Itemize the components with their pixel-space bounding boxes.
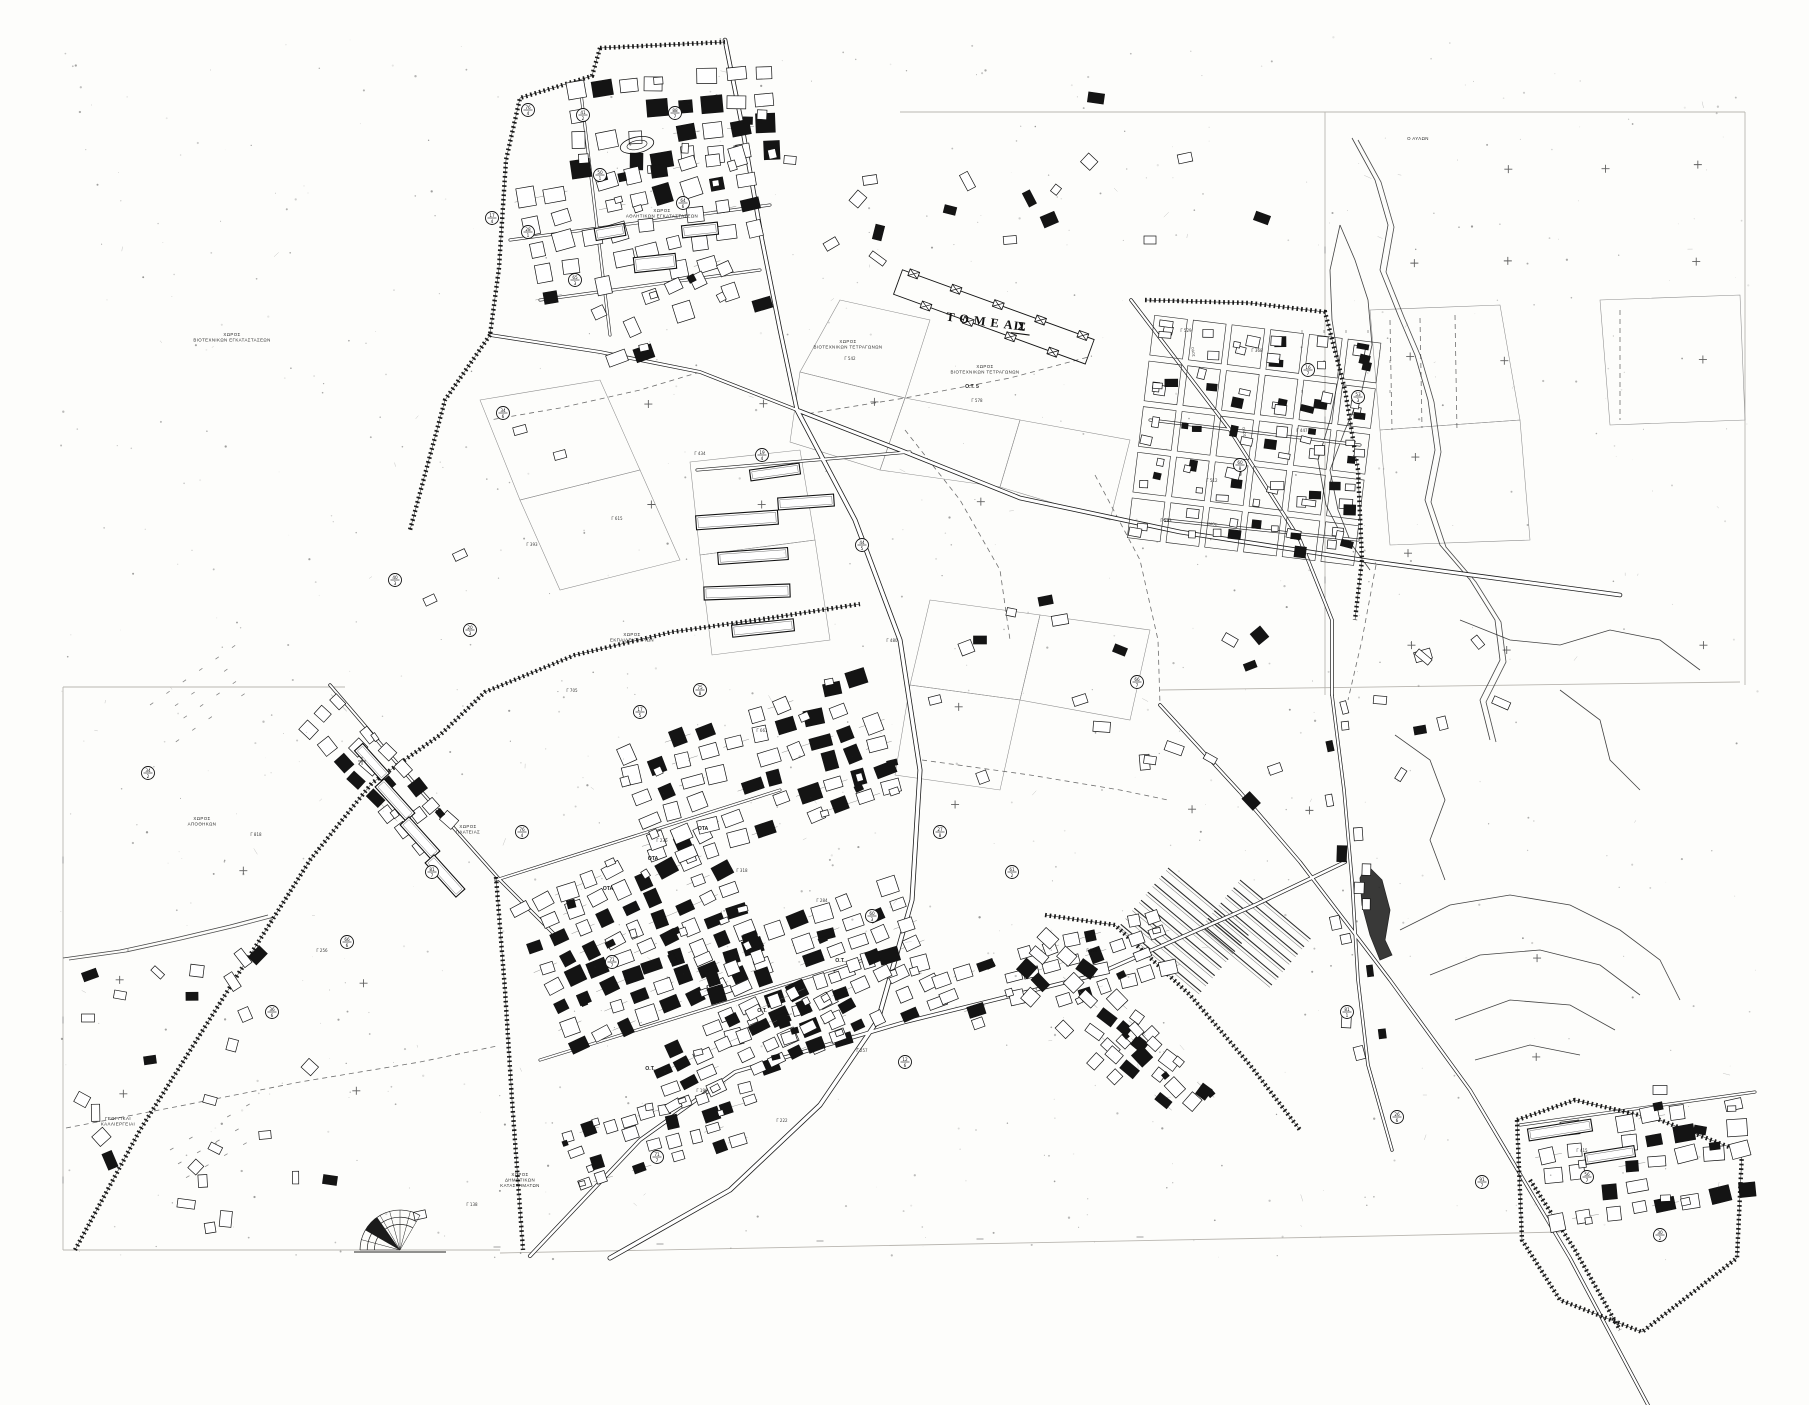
building bbox=[1213, 529, 1221, 537]
noise-dot bbox=[1278, 358, 1280, 360]
circle-marker: 667 bbox=[1131, 676, 1144, 689]
noise-dot bbox=[1616, 456, 1617, 457]
noise-dot bbox=[849, 563, 850, 564]
circle-marker-bottom: 3 bbox=[574, 281, 577, 286]
noise-dot bbox=[834, 624, 835, 625]
building bbox=[1344, 505, 1356, 515]
noise-dot bbox=[221, 324, 223, 326]
noise-dot bbox=[857, 282, 858, 283]
noise-dot bbox=[180, 154, 182, 156]
circle-marker-top: 88 bbox=[672, 108, 678, 113]
noise-dot bbox=[1261, 66, 1262, 67]
circle-marker: 646 bbox=[677, 197, 690, 210]
circle-marker-bottom: 3 bbox=[871, 917, 874, 922]
noise-dot bbox=[589, 333, 590, 334]
noise-dot bbox=[1159, 1051, 1161, 1053]
noise-dot bbox=[118, 172, 119, 173]
noise-dot bbox=[790, 766, 792, 768]
noise-dot bbox=[61, 911, 62, 912]
noise-dot bbox=[1613, 581, 1615, 583]
building bbox=[756, 67, 772, 80]
noise-dot bbox=[177, 713, 179, 715]
noise-dot bbox=[1286, 809, 1287, 810]
noise-dot bbox=[275, 193, 276, 194]
noise-dot bbox=[422, 1075, 424, 1077]
circle-marker-bottom: 6 bbox=[271, 1013, 274, 1018]
noise-dot bbox=[215, 1127, 217, 1129]
noise-dot bbox=[1073, 1153, 1074, 1154]
noise-dot bbox=[1319, 1236, 1321, 1238]
noise-dot bbox=[868, 207, 870, 209]
building bbox=[676, 123, 696, 141]
noise-dot bbox=[1652, 491, 1653, 492]
noise-dot bbox=[1621, 389, 1623, 391]
noise-dot bbox=[350, 39, 351, 40]
noise-dot bbox=[409, 1187, 410, 1188]
circle-marker-top: 34 bbox=[500, 408, 506, 413]
noise-dot bbox=[583, 532, 585, 534]
noise-dot bbox=[1152, 1121, 1153, 1122]
noise-dot bbox=[1478, 904, 1480, 906]
noise-dot bbox=[1480, 604, 1481, 605]
noise-dot bbox=[1197, 564, 1198, 565]
noise-dot bbox=[1367, 372, 1368, 373]
building bbox=[177, 1198, 196, 1209]
noise-dot bbox=[1146, 177, 1147, 178]
circle-marker-top: 12 bbox=[902, 1057, 908, 1062]
noise-dot bbox=[1533, 820, 1535, 822]
building bbox=[204, 1222, 216, 1234]
noise-dot bbox=[619, 924, 620, 925]
building bbox=[666, 235, 681, 249]
area-code-label: Γ 236 bbox=[656, 838, 668, 843]
noise-dot bbox=[1011, 924, 1012, 925]
area-code-label: Γ 138 bbox=[466, 1202, 478, 1207]
noise-dot bbox=[832, 864, 834, 866]
noise-dot bbox=[1735, 277, 1736, 278]
noise-dot bbox=[1698, 1156, 1700, 1158]
building bbox=[1159, 320, 1173, 328]
noise-dot bbox=[1716, 112, 1718, 114]
noise-dot bbox=[1166, 1187, 1167, 1188]
building bbox=[619, 78, 638, 93]
noise-dot bbox=[233, 1227, 234, 1228]
noise-dot bbox=[1575, 381, 1577, 383]
noise-dot bbox=[742, 1009, 743, 1010]
noise-dot bbox=[462, 705, 464, 707]
noise-dot bbox=[1734, 896, 1735, 897]
building bbox=[1182, 423, 1189, 429]
building bbox=[624, 166, 642, 185]
building bbox=[1203, 329, 1213, 337]
noise-dot bbox=[1042, 417, 1043, 418]
building bbox=[1003, 235, 1017, 244]
noise-dot bbox=[547, 1165, 549, 1167]
noise-dot bbox=[1379, 887, 1380, 888]
noise-dot bbox=[1323, 1190, 1324, 1191]
building bbox=[651, 164, 668, 179]
noise-dot bbox=[666, 976, 668, 978]
noise-dot bbox=[401, 675, 402, 676]
building bbox=[579, 1181, 586, 1187]
building bbox=[701, 95, 724, 114]
noise-dot bbox=[1275, 504, 1276, 505]
noise-dot bbox=[520, 1252, 522, 1254]
noise-dot bbox=[914, 1174, 916, 1176]
noise-dot bbox=[1730, 1066, 1731, 1067]
noise-dot bbox=[1688, 1106, 1689, 1107]
noise-dot bbox=[822, 278, 823, 279]
noise-dot bbox=[583, 530, 585, 532]
building bbox=[1153, 472, 1161, 480]
noise-dot bbox=[1161, 1127, 1163, 1129]
noise-dot bbox=[288, 535, 289, 536]
noise-dot bbox=[1236, 919, 1237, 920]
noise-dot bbox=[1178, 870, 1180, 872]
noise-dot bbox=[1735, 97, 1737, 99]
noise-dot bbox=[955, 366, 956, 367]
noise-dot bbox=[828, 322, 830, 324]
noise-dot bbox=[627, 687, 628, 688]
noise-dot bbox=[1068, 1217, 1070, 1219]
noise-dot bbox=[1717, 106, 1719, 108]
noise-dot bbox=[1092, 689, 1093, 690]
circle-marker: 278 bbox=[934, 826, 947, 839]
noise-dot bbox=[1522, 937, 1524, 939]
noise-dot bbox=[106, 299, 107, 300]
noise-dot bbox=[1410, 770, 1411, 771]
noise-dot bbox=[1747, 284, 1749, 286]
building bbox=[1196, 488, 1203, 494]
building bbox=[1128, 527, 1142, 537]
circle-marker-bottom: 7 bbox=[1307, 371, 1310, 376]
noise-dot bbox=[1523, 92, 1525, 94]
noise-dot bbox=[253, 1196, 255, 1198]
noise-dot bbox=[75, 64, 77, 66]
noise-dot bbox=[1054, 1117, 1055, 1118]
noise-dot bbox=[395, 1103, 397, 1105]
noise-dot bbox=[1447, 1139, 1448, 1140]
noise-dot bbox=[1172, 177, 1173, 178]
noise-dot bbox=[666, 329, 667, 330]
noise-dot bbox=[1064, 830, 1066, 832]
noise-dot bbox=[1035, 126, 1037, 128]
noise-dot bbox=[468, 861, 470, 863]
circle-marker-bottom: 8 bbox=[939, 833, 942, 838]
building bbox=[736, 172, 756, 188]
noise-dot bbox=[240, 627, 241, 628]
building bbox=[82, 1014, 95, 1022]
building bbox=[824, 678, 834, 686]
noise-dot bbox=[1613, 336, 1614, 337]
noise-dot bbox=[391, 1086, 393, 1088]
noise-dot bbox=[1458, 226, 1460, 228]
building bbox=[292, 1171, 298, 1184]
noise-dot bbox=[285, 44, 287, 46]
building bbox=[784, 155, 797, 164]
circle-marker-top: 75 bbox=[697, 685, 703, 690]
noise-dot bbox=[1123, 240, 1124, 241]
noise-dot bbox=[1373, 1118, 1375, 1120]
noise-dot bbox=[1457, 160, 1458, 161]
area-code-label: Γ 583 bbox=[1160, 518, 1172, 523]
noise-dot bbox=[221, 1123, 223, 1125]
paper-background bbox=[0, 0, 1809, 1405]
building bbox=[534, 263, 553, 284]
noise-dot bbox=[258, 1092, 260, 1094]
building bbox=[189, 964, 204, 977]
noise-dot bbox=[1606, 855, 1607, 856]
noise-dot bbox=[549, 1213, 551, 1215]
circle-marker-top: 28 bbox=[525, 227, 531, 232]
circle-marker: 175 bbox=[634, 706, 647, 719]
noise-dot bbox=[809, 890, 811, 892]
circle-marker: 266 bbox=[1391, 1111, 1404, 1124]
noise-dot bbox=[271, 714, 273, 716]
noise-dot bbox=[499, 1095, 500, 1096]
noise-dot bbox=[1449, 42, 1451, 44]
noise-dot bbox=[1217, 523, 1218, 524]
noise-dot bbox=[1383, 468, 1385, 470]
noise-dot bbox=[993, 952, 994, 953]
noise-dot bbox=[878, 249, 879, 250]
building bbox=[1321, 392, 1333, 404]
noise-dot bbox=[1046, 646, 1048, 648]
area-code-label: Γ 304 bbox=[1086, 948, 1098, 953]
noise-dot bbox=[1393, 1159, 1395, 1161]
noise-dot bbox=[1747, 424, 1748, 425]
noise-dot bbox=[61, 1038, 63, 1040]
noise-dot bbox=[623, 620, 624, 621]
building bbox=[754, 93, 773, 107]
noise-dot bbox=[1365, 802, 1366, 803]
noise-dot bbox=[183, 483, 185, 485]
noise-dot bbox=[601, 878, 603, 880]
noise-dot bbox=[431, 190, 433, 192]
area-code-label: Γ 578 bbox=[971, 398, 983, 403]
circle-marker-top: 19 bbox=[759, 450, 765, 455]
noise-dot bbox=[1418, 685, 1420, 687]
noise-dot bbox=[552, 1258, 554, 1260]
noise-dot bbox=[1351, 954, 1353, 956]
circle-marker-bottom: 5 bbox=[861, 546, 864, 551]
noise-dot bbox=[1632, 996, 1634, 998]
circle-marker: 533 bbox=[1352, 391, 1365, 404]
noise-dot bbox=[599, 822, 600, 823]
noise-dot bbox=[494, 1257, 495, 1258]
noise-dot bbox=[442, 409, 443, 410]
building bbox=[113, 990, 126, 1000]
building bbox=[198, 1175, 208, 1188]
building bbox=[259, 1130, 272, 1139]
building bbox=[1345, 484, 1355, 491]
noise-dot bbox=[751, 692, 753, 694]
noise-dot bbox=[862, 645, 864, 647]
building bbox=[1727, 1106, 1735, 1112]
noise-dot bbox=[473, 228, 474, 229]
noise-dot bbox=[1555, 73, 1556, 74]
noise-dot bbox=[1205, 555, 1207, 557]
noise-dot bbox=[574, 1011, 575, 1012]
noise-dot bbox=[1531, 942, 1533, 944]
noise-dot bbox=[1007, 1123, 1008, 1124]
noise-dot bbox=[165, 1029, 167, 1031]
block-label: Ο.Τ. 5 bbox=[965, 384, 979, 390]
noise-dot bbox=[719, 76, 720, 77]
noise-dot bbox=[663, 793, 665, 795]
noise-dot bbox=[172, 296, 173, 297]
noise-dot bbox=[842, 792, 843, 793]
noise-dot bbox=[1724, 520, 1726, 522]
noise-dot bbox=[303, 185, 304, 186]
noise-dot bbox=[1328, 671, 1330, 673]
noise-dot bbox=[666, 542, 668, 544]
circle-marker-top: 40 bbox=[392, 575, 398, 580]
noise-dot bbox=[279, 471, 280, 472]
noise-dot bbox=[270, 772, 271, 773]
noise-dot bbox=[308, 558, 310, 560]
noise-dot bbox=[1003, 629, 1005, 631]
noise-dot bbox=[723, 910, 725, 912]
noise-dot bbox=[993, 1232, 995, 1234]
noise-dot bbox=[920, 973, 922, 975]
building bbox=[1693, 1125, 1706, 1135]
noise-dot bbox=[1314, 720, 1316, 722]
noise-dot bbox=[760, 332, 762, 334]
noise-dot bbox=[829, 859, 831, 861]
noise-dot bbox=[757, 1216, 759, 1218]
noise-dot bbox=[388, 1091, 389, 1092]
noise-dot bbox=[1549, 237, 1551, 239]
noise-dot bbox=[955, 1005, 957, 1007]
noise-dot bbox=[1007, 291, 1008, 292]
noise-dot bbox=[629, 144, 631, 146]
noise-dot bbox=[721, 911, 722, 912]
noise-dot bbox=[855, 59, 857, 61]
noise-dot bbox=[561, 680, 562, 681]
circle-marker-bottom: 7 bbox=[1586, 1178, 1589, 1183]
noise-dot bbox=[1347, 358, 1348, 359]
noise-dot bbox=[534, 878, 536, 880]
noise-dot bbox=[736, 1005, 737, 1006]
noise-dot bbox=[1018, 217, 1020, 219]
noise-dot bbox=[1284, 914, 1286, 916]
noise-dot bbox=[1210, 779, 1212, 781]
circle-marker-bottom: 3 bbox=[469, 631, 472, 636]
noise-dot bbox=[181, 858, 182, 859]
noise-dot bbox=[1670, 1050, 1671, 1051]
zone-label: ΓΕΩΡΓΙΚΑΙΚΑΛΛΙΕΡΓΕΙΑΙ bbox=[101, 1116, 135, 1126]
circle-marker-top: 76 bbox=[519, 827, 525, 832]
noise-dot bbox=[1200, 831, 1202, 833]
noise-dot bbox=[665, 173, 666, 174]
noise-dot bbox=[509, 482, 511, 484]
building bbox=[618, 173, 627, 182]
noise-dot bbox=[811, 81, 812, 82]
noise-dot bbox=[1057, 196, 1058, 197]
building bbox=[1151, 417, 1159, 428]
noise-dot bbox=[1214, 1219, 1216, 1221]
noise-dot bbox=[1087, 1214, 1088, 1215]
building bbox=[1186, 508, 1199, 518]
noise-dot bbox=[1054, 1034, 1056, 1036]
noise-dot bbox=[1458, 1097, 1460, 1099]
noise-dot bbox=[1623, 956, 1624, 957]
noise-dot bbox=[1466, 957, 1467, 958]
noise-dot bbox=[929, 906, 931, 908]
noise-dot bbox=[599, 354, 600, 355]
circle-marker-top: 34 bbox=[145, 768, 151, 773]
noise-dot bbox=[966, 665, 967, 666]
circle-marker-top: 17 bbox=[637, 707, 643, 712]
circle-marker-bottom: 2 bbox=[582, 116, 585, 121]
noise-dot bbox=[929, 407, 930, 408]
noise-dot bbox=[575, 805, 577, 807]
noise-dot bbox=[498, 578, 499, 579]
noise-dot bbox=[1497, 300, 1498, 301]
circle-marker-bottom: 2 bbox=[147, 774, 150, 779]
noise-dot bbox=[103, 527, 104, 528]
circle-marker: 174 bbox=[486, 212, 499, 225]
noise-dot bbox=[724, 725, 726, 727]
noise-dot bbox=[1527, 817, 1529, 819]
area-code-label: Γ 393 bbox=[526, 542, 538, 547]
area-code-label: Γ 661 bbox=[756, 728, 768, 733]
building bbox=[566, 80, 587, 100]
noise-dot bbox=[1318, 1010, 1319, 1011]
noise-dot bbox=[1048, 174, 1049, 175]
noise-dot bbox=[594, 966, 596, 968]
noise-dot bbox=[545, 1122, 547, 1124]
noise-dot bbox=[127, 949, 129, 951]
noise-dot bbox=[91, 105, 92, 106]
noise-dot bbox=[439, 293, 440, 294]
circle-marker-top: 17 bbox=[489, 213, 495, 218]
noise-dot bbox=[627, 1102, 629, 1104]
noise-dot bbox=[674, 394, 675, 395]
noise-dot bbox=[267, 316, 269, 318]
noise-dot bbox=[1397, 781, 1398, 782]
noise-dot bbox=[114, 1226, 116, 1228]
noise-dot bbox=[1172, 1163, 1173, 1164]
noise-dot bbox=[995, 544, 996, 545]
circle-marker-bottom: 8 bbox=[699, 691, 702, 696]
building bbox=[862, 175, 877, 186]
circle-marker: 603 bbox=[866, 910, 879, 923]
noise-dot bbox=[441, 639, 442, 640]
noise-dot bbox=[739, 477, 741, 479]
noise-dot bbox=[497, 488, 499, 490]
noise-dot bbox=[801, 890, 803, 892]
noise-dot bbox=[1109, 578, 1110, 579]
noise-dot bbox=[1159, 753, 1160, 754]
noise-dot bbox=[1430, 58, 1432, 60]
noise-dot bbox=[1485, 1188, 1486, 1189]
noise-dot bbox=[1193, 1240, 1194, 1241]
noise-dot bbox=[1152, 300, 1154, 302]
noise-dot bbox=[865, 930, 867, 932]
noise-dot bbox=[634, 694, 635, 695]
noise-dot bbox=[132, 573, 134, 575]
noise-dot bbox=[1050, 1026, 1052, 1028]
building bbox=[1346, 440, 1355, 445]
noise-dot bbox=[292, 679, 294, 681]
noise-dot bbox=[901, 596, 903, 598]
noise-dot bbox=[1276, 1114, 1277, 1115]
noise-dot bbox=[831, 854, 833, 856]
noise-dot bbox=[1071, 84, 1073, 86]
noise-dot bbox=[545, 1192, 546, 1193]
